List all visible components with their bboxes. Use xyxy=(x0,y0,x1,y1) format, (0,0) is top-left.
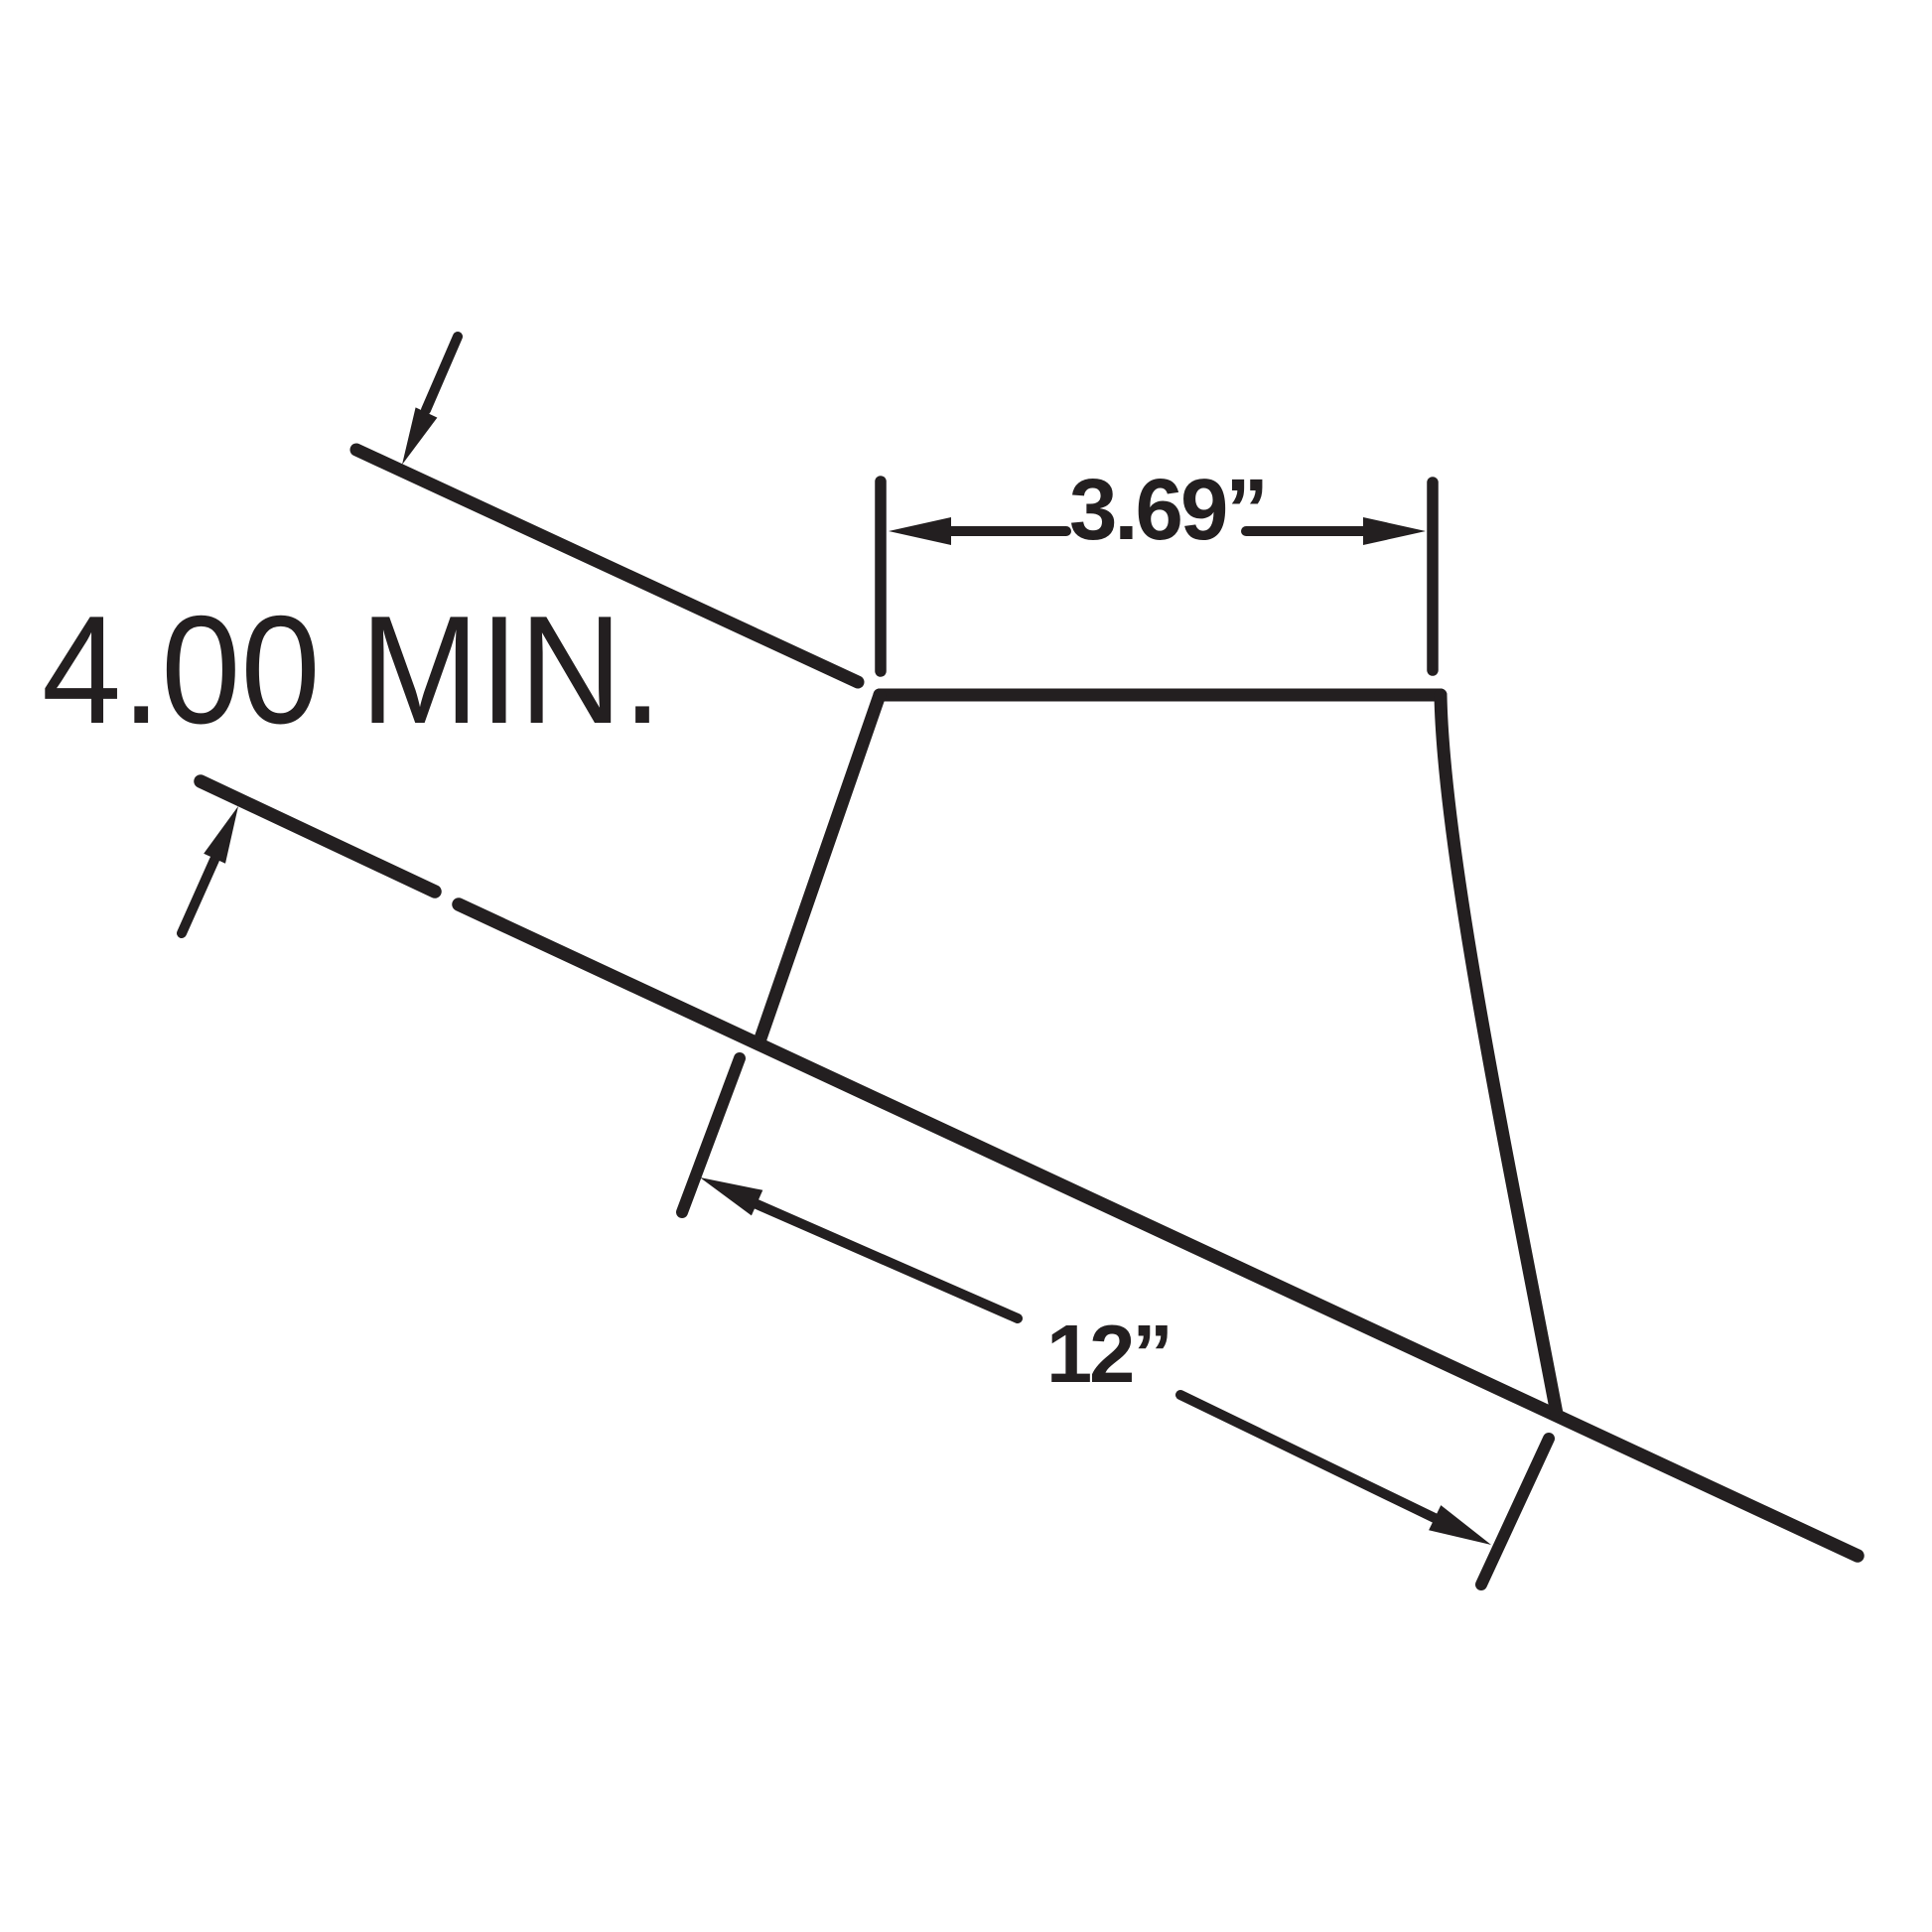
svg-text:12”: 12” xyxy=(1046,1308,1171,1400)
svg-text:3.69”: 3.69” xyxy=(1069,462,1266,558)
svg-text:4.00 MIN.: 4.00 MIN. xyxy=(42,584,662,756)
